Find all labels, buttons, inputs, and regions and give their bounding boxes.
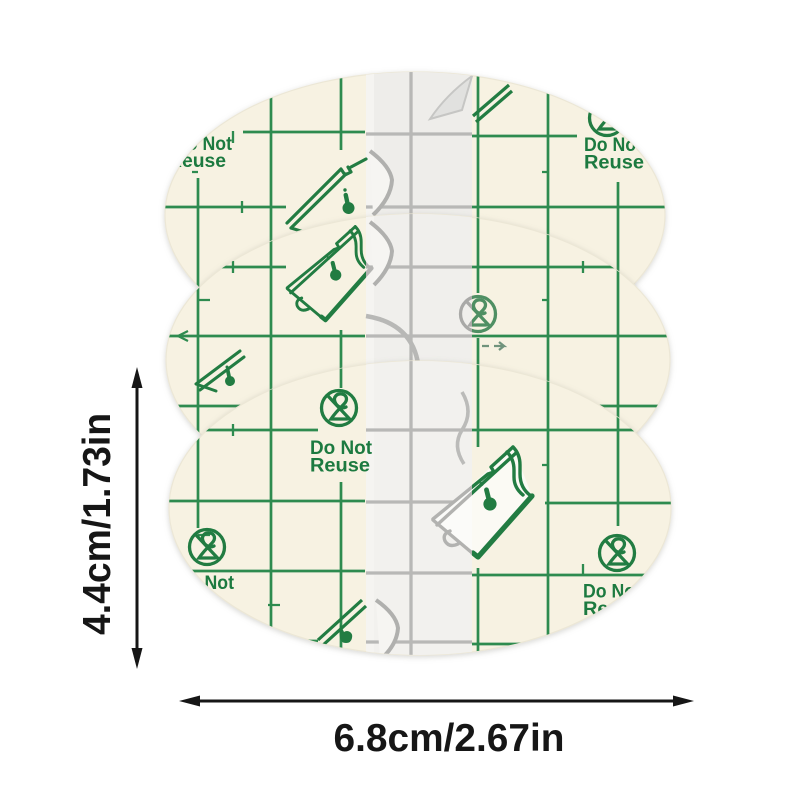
svg-text:Reuse: Reuse [310, 455, 370, 477]
svg-text:4.4cm/1.73in: 4.4cm/1.73in [76, 413, 119, 635]
svg-text:6.8cm/2.67in: 6.8cm/2.67in [334, 717, 565, 760]
svg-text:Reuse: Reuse [584, 152, 644, 174]
